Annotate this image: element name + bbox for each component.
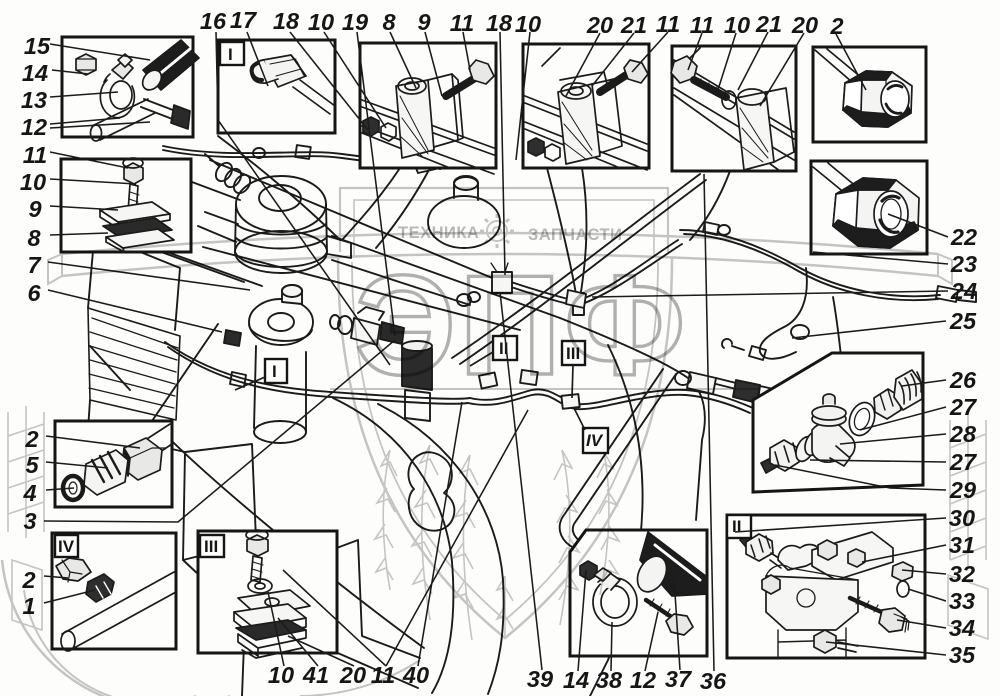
svg-text:11: 11: [23, 142, 47, 168]
svg-text:33: 33: [949, 588, 975, 614]
svg-text:21: 21: [620, 12, 647, 38]
svg-text:7: 7: [27, 252, 41, 278]
svg-text:IV: IV: [58, 537, 75, 556]
svg-text:8: 8: [382, 9, 396, 35]
svg-text:II: II: [732, 517, 741, 536]
svg-text:4: 4: [22, 480, 36, 506]
svg-text:9: 9: [28, 196, 41, 222]
svg-text:27: 27: [949, 394, 977, 420]
svg-text:24: 24: [950, 278, 977, 304]
svg-text:14: 14: [563, 667, 589, 693]
svg-text:III: III: [204, 537, 218, 556]
svg-text:10: 10: [20, 169, 46, 195]
svg-text:21: 21: [755, 11, 782, 37]
svg-text:13: 13: [21, 87, 47, 113]
svg-text:11: 11: [656, 11, 680, 37]
svg-text:2: 2: [21, 567, 35, 593]
svg-text:18: 18: [273, 8, 300, 34]
svg-text:35: 35: [949, 642, 976, 668]
svg-text:40: 40: [402, 662, 429, 688]
svg-text:37: 37: [665, 666, 692, 692]
svg-text:17: 17: [230, 7, 257, 33]
svg-text:10: 10: [515, 11, 541, 37]
svg-text:12: 12: [630, 667, 656, 693]
svg-text:18: 18: [486, 10, 513, 36]
svg-text:25: 25: [949, 308, 977, 334]
svg-text:2: 2: [829, 13, 843, 39]
svg-text:11: 11: [450, 10, 474, 36]
svg-text:IV: IV: [586, 431, 604, 450]
svg-text:ЭПФ: ЭПФ: [355, 246, 688, 405]
svg-text:11: 11: [690, 12, 714, 38]
svg-text:10: 10: [724, 12, 750, 38]
svg-text:19: 19: [342, 9, 368, 35]
svg-text:10: 10: [308, 9, 334, 35]
svg-text:9: 9: [417, 9, 430, 35]
svg-text:20: 20: [586, 12, 613, 38]
svg-text:8: 8: [27, 225, 41, 251]
svg-text:6: 6: [27, 280, 41, 306]
svg-text:39: 39: [527, 666, 553, 692]
svg-text:20: 20: [339, 662, 366, 688]
svg-text:ТЕХНИКА: ТЕХНИКА: [398, 224, 479, 242]
svg-text:38: 38: [596, 667, 623, 693]
svg-text:41: 41: [302, 662, 329, 688]
svg-text:15: 15: [24, 33, 51, 59]
svg-text:I: I: [228, 45, 233, 64]
svg-text:23: 23: [950, 251, 977, 277]
svg-text:26: 26: [949, 367, 977, 393]
svg-text:ЗАПЧАСТИ: ЗАПЧАСТИ: [528, 226, 622, 244]
svg-text:I: I: [272, 362, 277, 381]
svg-text:14: 14: [22, 60, 48, 86]
svg-text:31: 31: [949, 532, 975, 558]
svg-text:16: 16: [200, 8, 227, 34]
svg-text:34: 34: [949, 615, 975, 641]
svg-text:12: 12: [21, 114, 47, 140]
svg-text:20: 20: [791, 12, 818, 38]
svg-text:36: 36: [700, 668, 727, 694]
svg-text:22: 22: [950, 224, 977, 250]
svg-text:10: 10: [268, 662, 294, 688]
